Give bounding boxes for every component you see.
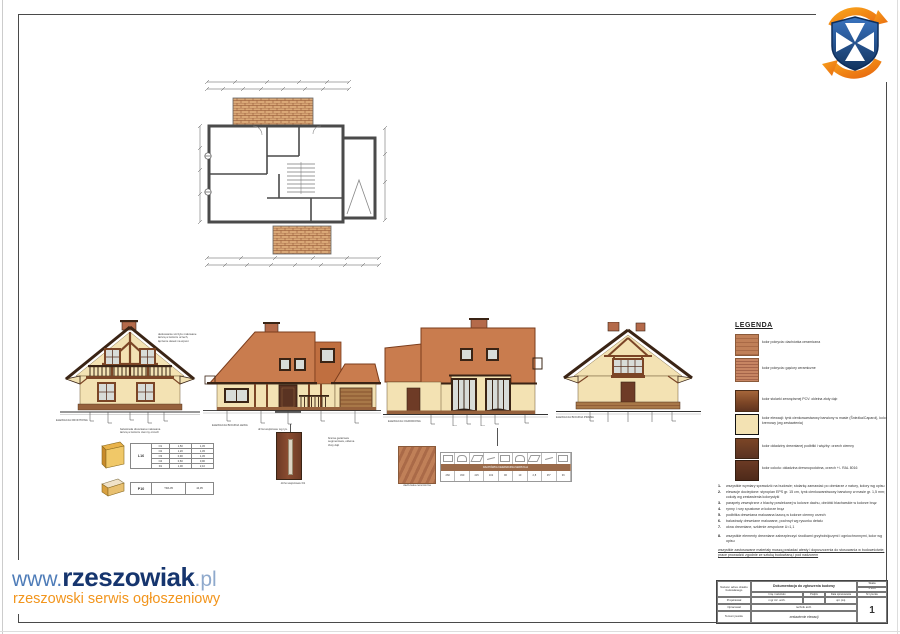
leader-to-door-detail (290, 424, 291, 432)
annex-roof (385, 344, 421, 382)
watermark-url: www.rzeszowiak.pl (12, 562, 217, 593)
leader-lines (90, 412, 168, 423)
title-block-subject-value: zestawienie elewacji (751, 611, 857, 623)
elevation-garden (383, 318, 548, 426)
notes-footer: wszystkie zastosowane materiały muszą po… (718, 548, 890, 557)
elevation-label-side-right: ELEWACJA BOCZNA PRAWA (556, 416, 594, 419)
garage-door (340, 388, 372, 410)
terrace-top (233, 98, 313, 126)
plan-walls (209, 126, 375, 222)
title-block-designer-cert: upr. proj. (825, 597, 857, 604)
note-item: 3.parapety zewnętrzne z blachy powlekane… (718, 501, 890, 505)
door-detail (276, 432, 302, 480)
elevation-label-garden: ELEWACJA OGRODOWA (388, 420, 421, 423)
title-block: Nazwa i adres obiektu budowlanego Dokume… (716, 580, 888, 624)
legend-label-roof-tile: kolor pokrycia: dachówka ceramiczna (762, 340, 890, 345)
legend-swatch-roof-tile (735, 334, 759, 356)
legend-swatch-base (735, 460, 759, 481)
elevation-side-entry (203, 318, 381, 426)
title-block-drawing-number: 1 (857, 597, 887, 623)
legend-label-base: kolor cokołu: okładzina drewnopodobna, o… (762, 466, 890, 471)
note-item: 8.wszystkie elementy drewniane zabezpiec… (718, 534, 890, 543)
title-block-designer-label: Projektował (717, 597, 751, 604)
title-block-drafter-label: Opracował (717, 604, 751, 611)
terrace-bottom (273, 226, 331, 254)
page-edge-right (897, 0, 898, 634)
plinth (217, 407, 335, 410)
title-block-designer-name: mgr inż. arch. (751, 597, 803, 604)
tile-spec-band: DACHÓWKA CERAMICZNA MARSYLIA (441, 464, 571, 471)
door-glass-stripe (288, 439, 293, 475)
title-block-designer-sign (803, 597, 825, 604)
watermark-subtitle: rzeszowski serwis ogłoszeniowy (13, 591, 220, 607)
leader-lines (431, 415, 529, 426)
watermark-name: rzeszowiak (62, 562, 194, 592)
page-edge-bottom (0, 631, 900, 632)
site-logo (816, 4, 894, 82)
legend-swatch-ridge-tile (735, 358, 759, 382)
leader-to-tile-sample (497, 428, 498, 446)
legend-swatch-soffit (735, 438, 759, 459)
legend-title: LEGENDA (735, 322, 773, 329)
note-item: 1.wszystkie wymiary sprawdzić na budowie… (718, 484, 890, 488)
door-detail-caption: drzwi wejściowe D1 (268, 482, 318, 485)
legend-label-joinery: kolor stolarki zewnętrznej PCV: okleina … (762, 397, 890, 402)
dimension-lines-top (205, 80, 351, 91)
annex-door (407, 388, 420, 412)
note-item: 4.rynny i rury spustowe w kolorze brąz (718, 507, 890, 511)
notes-list: 1.wszystkie wymiary sprawdzić na budowie… (718, 484, 890, 558)
schedule-table-l16: L16 O11,501,45 O21,201,45 O30,901,45 O40… (130, 443, 214, 469)
elevation-label-side-left: ELEWACJA BOCZNA LEWA (212, 424, 248, 427)
legend-label-ridge-tile: kolor pokrycia: gąsiory ceramiczne (762, 366, 890, 371)
drawing-sheet-page: ELEWACJA FRONTOWA ELEWACJA BOCZNA LEWA E… (0, 0, 900, 634)
leader-lines (590, 412, 676, 422)
upper-window (611, 358, 645, 378)
elevation-label-front: ELEWACJA FRONTOWA (56, 419, 88, 422)
wall (80, 376, 180, 406)
profile-detail-p10 (98, 476, 128, 505)
watermark-tld: .pl (194, 568, 216, 591)
title-block-doc-title: Dokumentacja do zgłoszenia budowy (751, 581, 857, 592)
legend-label-soffit: kolor okładziny drewnianej podbitki i wi… (762, 444, 890, 449)
profile-detail-l16 (98, 440, 128, 477)
note-item: 2.elewacje docieplone: styropian EPS gr.… (718, 490, 890, 499)
annotation-garage-door: brama garażowa segmentowa, okleina złoty… (328, 437, 380, 447)
legend-swatch-plaster (735, 414, 759, 435)
title-block-subject-label: Temat rysunku (717, 611, 751, 623)
page-edge-left (2, 0, 3, 634)
shield-logo-icon (816, 4, 894, 82)
window-left (224, 388, 249, 403)
elevation-side-gable (556, 322, 701, 422)
legend-swatch-joinery (735, 390, 759, 412)
annotation-entry-door: drzwi wejściowe wg rys. (258, 428, 318, 431)
chimney (608, 322, 619, 331)
watermark-www: www. (12, 568, 62, 591)
plan-garage (343, 138, 375, 218)
tile-spec-values: 260330 415102 9610 2,845° 36 (441, 471, 571, 481)
lower-door (621, 382, 635, 404)
plinth (78, 404, 182, 410)
tile-spec-table: DACHÓWKA CERAMICZNA MARSYLIA 260330 4151… (440, 452, 572, 482)
title-block-drafter-value: technik arch. (751, 604, 857, 611)
watermark: www.rzeszowiak.pl rzeszowski serwis ogło… (8, 560, 266, 614)
schedule-table-p10: P10 TRA 05 44,05 (130, 482, 214, 495)
title-block-object-label: Nazwa i adres obiektu budowlanego (717, 581, 751, 597)
legend-label-plaster: kolor elewacji: tynk cienkowarstwowy bar… (762, 416, 890, 425)
chimney (471, 319, 487, 328)
note-item: 6.balustrady drewniane malowane, pochwyt… (718, 519, 890, 523)
note-item: 7.okna drewniane, szklenie zespolone U=1… (718, 525, 890, 529)
floor-plan (195, 58, 395, 270)
tile-sample-caption: dachówka ceramiczna (394, 484, 440, 487)
annotation-gable-boarding: deskowanie szczytu malowane lazurą w kol… (158, 333, 220, 343)
tile-spec-glyph-row (441, 453, 571, 464)
note-item: 5.podbitka drewniana malowana lazurą w k… (718, 513, 890, 517)
annotation-balustrade: balustrada drewniana malowana lazurą w k… (120, 428, 192, 435)
plinth (423, 411, 535, 415)
tile-sample-swatch (398, 446, 436, 484)
